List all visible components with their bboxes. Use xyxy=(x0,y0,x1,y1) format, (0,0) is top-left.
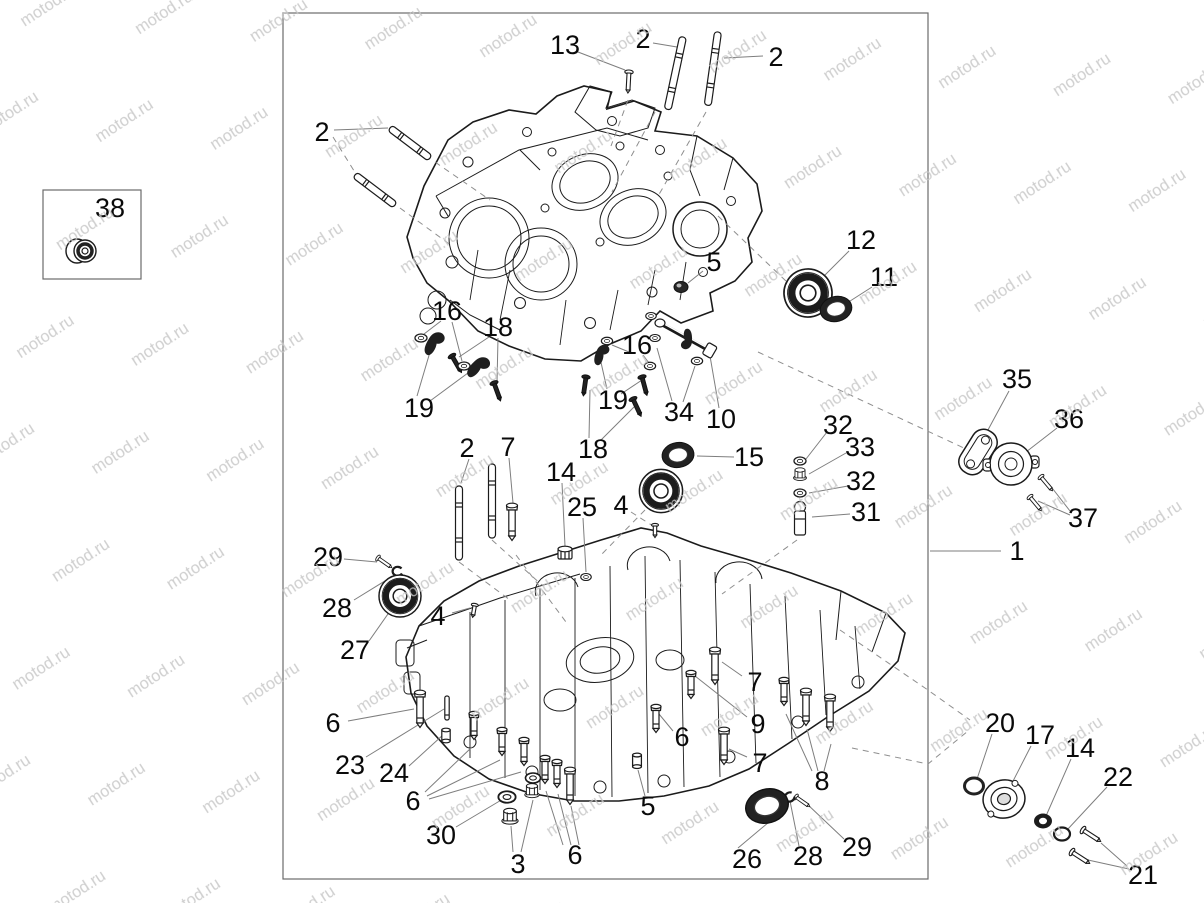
lower-crankcase-drawing xyxy=(396,528,905,801)
callout-13: 13 xyxy=(550,30,580,60)
stud-2-upper-left-a xyxy=(388,125,432,161)
bolt-4-left xyxy=(469,603,478,618)
parts-diagram-page: motod.ru motod.ru xyxy=(0,0,1204,903)
callout-7-mid: 7 xyxy=(500,432,515,462)
bolt-6-b3 xyxy=(519,737,529,765)
bolt-8-a xyxy=(779,677,789,705)
bolt-6-c1 xyxy=(540,755,550,783)
stud-2-upper-left-b xyxy=(353,172,397,208)
stud-2-top-b xyxy=(704,32,721,106)
bolt-9 xyxy=(686,670,696,698)
callout-6-c: 6 xyxy=(567,840,582,870)
callout-37: 37 xyxy=(1068,503,1098,533)
stud-2-top-a xyxy=(664,36,686,110)
callout-27: 27 xyxy=(340,635,370,665)
bolt-7-mid xyxy=(507,503,518,540)
callout-22: 22 xyxy=(1103,762,1133,792)
callout-2-top-a: 2 xyxy=(635,24,650,54)
callout-15: 15 xyxy=(734,442,764,472)
bolt-6-d xyxy=(651,704,661,732)
lever-19-left-a xyxy=(425,332,445,355)
screw-29-left xyxy=(375,554,394,570)
screw-29-lower xyxy=(793,793,812,809)
callout-25: 25 xyxy=(567,492,597,522)
stud-2-mid-b xyxy=(489,464,496,538)
lever-19-left-b xyxy=(466,354,491,381)
callout-34: 34 xyxy=(664,397,694,427)
oring-20 xyxy=(965,778,984,794)
washer-25 xyxy=(581,574,592,581)
callout-31: 31 xyxy=(851,497,881,527)
callout-1: 1 xyxy=(1009,536,1024,566)
callout-23: 23 xyxy=(335,750,365,780)
washer-34-b xyxy=(691,357,702,365)
callout-6-d: 6 xyxy=(674,722,689,752)
callout-16-right: 16 xyxy=(622,330,652,360)
callout-28-left: 28 xyxy=(322,593,352,623)
lever-19-right xyxy=(592,344,612,366)
washer-32-a xyxy=(794,457,806,465)
seal-26 xyxy=(742,784,793,828)
bolt-6-b1 xyxy=(469,711,479,739)
bolt-8-b xyxy=(801,688,812,725)
callout-19-right: 19 xyxy=(598,385,628,415)
callout-16-left: 16 xyxy=(432,296,462,326)
callout-24: 24 xyxy=(379,758,409,788)
bolt-6-c2 xyxy=(552,759,562,787)
callout-36: 36 xyxy=(1054,404,1084,434)
callout-14-lower: 14 xyxy=(1065,733,1095,763)
callout-7-bottom: 7 xyxy=(752,748,767,778)
callout-29-left: 29 xyxy=(313,542,343,572)
callout-20: 20 xyxy=(985,708,1015,738)
callout-5-lower: 5 xyxy=(640,791,655,821)
bushing-38 xyxy=(66,239,96,263)
callout-21: 21 xyxy=(1128,860,1158,890)
callout-18-left: 18 xyxy=(483,312,513,342)
callout-2-top-b: 2 xyxy=(768,42,783,72)
screw-21-b xyxy=(1068,847,1092,867)
nut-3-a xyxy=(525,784,539,798)
screw-18-right-a xyxy=(579,374,590,396)
callout-4-left: 4 xyxy=(430,601,445,631)
callout-2-mid: 2 xyxy=(459,433,474,463)
washer-16-left xyxy=(415,334,427,342)
callout-28-lower: 28 xyxy=(793,841,823,871)
callout-35: 35 xyxy=(1002,364,1032,394)
nut-33 xyxy=(794,468,807,481)
callout-26: 26 xyxy=(732,844,762,874)
callout-12: 12 xyxy=(846,225,876,255)
callout-30: 30 xyxy=(426,820,456,850)
callout-32-b: 32 xyxy=(846,466,876,496)
washer-30 xyxy=(498,791,515,803)
callout-29-lower: 29 xyxy=(842,832,872,862)
pin-23 xyxy=(445,696,449,720)
bearing-27 xyxy=(379,575,421,617)
callout-11: 11 xyxy=(870,262,898,292)
screw-18-right-b xyxy=(628,395,644,418)
callout-18-right: 18 xyxy=(578,434,608,464)
callout-2-upper-left: 2 xyxy=(314,117,329,147)
nut-3-b xyxy=(502,808,518,824)
bolt-6-b2 xyxy=(497,727,507,755)
callout-14-mid: 14 xyxy=(546,457,576,487)
callout-7-top: 7 xyxy=(747,667,762,697)
washer-32-b xyxy=(794,489,806,497)
bolt-7-bottom xyxy=(719,727,730,764)
callout-4-right: 4 xyxy=(613,490,628,520)
screw-19-right xyxy=(637,374,651,396)
plug-5-upper xyxy=(674,282,688,293)
callout-6-a: 6 xyxy=(325,708,340,738)
valve-31 xyxy=(795,502,806,536)
plug-14-mid xyxy=(558,546,572,559)
inset-border-box xyxy=(43,190,141,279)
screw-37-a xyxy=(1037,473,1055,493)
seal-15 xyxy=(660,440,695,469)
washer-pipe-10 xyxy=(646,313,657,320)
diagram-canvas: motod.ru motod.ru xyxy=(0,0,1204,903)
callout-17: 17 xyxy=(1025,720,1055,750)
callout-9: 9 xyxy=(750,709,765,739)
washer-14-lower xyxy=(1034,814,1052,829)
bolt-7-top xyxy=(710,647,721,684)
screw-37-b xyxy=(1026,493,1044,513)
callout-10: 10 xyxy=(706,404,736,434)
washer-16-right-b xyxy=(644,362,655,370)
callout-5-upper: 5 xyxy=(706,247,721,277)
screw-18-left-b xyxy=(489,380,504,403)
washer-16-left-b xyxy=(458,362,470,370)
small-parts xyxy=(66,239,1070,841)
callout-38: 38 xyxy=(95,193,125,223)
callout-3: 3 xyxy=(510,849,525,879)
spacer-24 xyxy=(442,728,450,743)
callout-19-left: 19 xyxy=(404,393,434,423)
plug-5-lower xyxy=(633,753,642,768)
stud-2-mid xyxy=(456,486,463,560)
callout-8: 8 xyxy=(814,766,829,796)
washer-22 xyxy=(1054,828,1070,841)
callout-6-b: 6 xyxy=(405,786,420,816)
screw-13 xyxy=(624,70,634,93)
housing-17 xyxy=(980,776,1029,822)
bearing-15 xyxy=(639,469,682,512)
screw-21-a xyxy=(1079,825,1103,845)
washer-3-a xyxy=(526,773,541,783)
washer-16-right xyxy=(601,337,612,345)
callout-33: 33 xyxy=(845,432,875,462)
